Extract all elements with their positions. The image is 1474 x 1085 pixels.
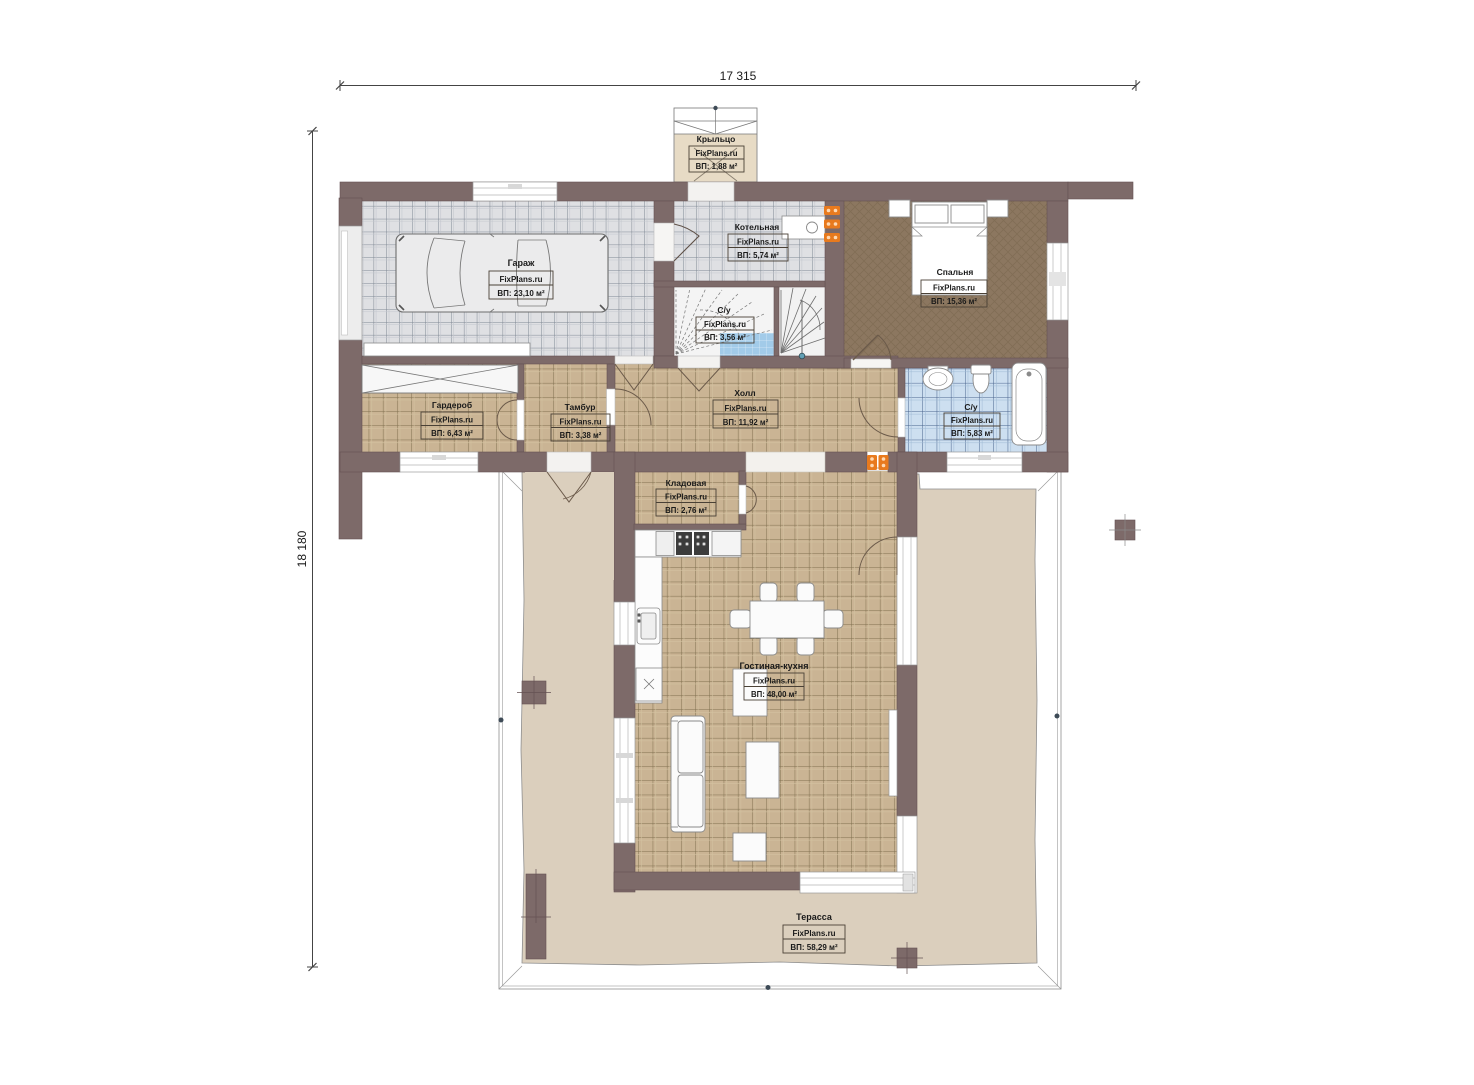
svg-text:FixPlans.ru: FixPlans.ru bbox=[559, 417, 601, 426]
svg-text:FixPlans.ru: FixPlans.ru bbox=[431, 415, 473, 424]
svg-text:ВП: 5,83 м²: ВП: 5,83 м² bbox=[951, 429, 993, 438]
svg-text:С/у: С/у bbox=[964, 402, 978, 412]
svg-text:Терасса: Терасса bbox=[796, 912, 833, 922]
svg-text:ВП: 58,29 м²: ВП: 58,29 м² bbox=[790, 943, 838, 952]
svg-text:17 315: 17 315 bbox=[720, 69, 757, 83]
svg-text:ВП: 11,92 м²: ВП: 11,92 м² bbox=[723, 418, 769, 427]
svg-text:FixPlans.ru: FixPlans.ru bbox=[737, 237, 779, 246]
svg-text:Спальня: Спальня bbox=[937, 267, 974, 277]
svg-text:FixPlans.ru: FixPlans.ru bbox=[704, 320, 746, 329]
svg-text:Гостиная-кухня: Гостиная-кухня bbox=[740, 661, 809, 671]
svg-text:Крыльцо: Крыльцо bbox=[697, 134, 736, 144]
svg-text:ВП: 5,74 м²: ВП: 5,74 м² bbox=[737, 251, 779, 260]
svg-text:FixPlans.ru: FixPlans.ru bbox=[792, 929, 835, 938]
svg-text:Холл: Холл bbox=[734, 388, 755, 398]
svg-text:FixPlans.ru: FixPlans.ru bbox=[724, 404, 766, 413]
svg-text:ВП: 15,36 м²: ВП: 15,36 м² bbox=[931, 297, 977, 306]
svg-text:ВП: 6,43 м²: ВП: 6,43 м² bbox=[431, 429, 473, 438]
svg-text:FixPlans.ru: FixPlans.ru bbox=[665, 492, 707, 501]
svg-text:Гараж: Гараж bbox=[508, 258, 535, 268]
svg-text:FixPlans.ru: FixPlans.ru bbox=[753, 676, 795, 685]
svg-text:Гардероб: Гардероб bbox=[432, 400, 472, 410]
svg-text:ВП: 3,56 м²: ВП: 3,56 м² bbox=[704, 333, 746, 342]
svg-text:ВП: 23,10 м²: ВП: 23,10 м² bbox=[497, 289, 545, 298]
svg-text:18 180: 18 180 bbox=[295, 530, 309, 567]
svg-text:ВП: 48,00 м²: ВП: 48,00 м² bbox=[751, 690, 797, 699]
svg-text:ВП: 1,88 м²: ВП: 1,88 м² bbox=[696, 162, 738, 171]
svg-text:Котельная: Котельная bbox=[735, 222, 780, 232]
svg-text:Тамбур: Тамбур bbox=[565, 402, 596, 412]
svg-text:FixPlans.ru: FixPlans.ru bbox=[951, 416, 993, 425]
svg-text:FixPlans.ru: FixPlans.ru bbox=[499, 275, 542, 284]
svg-text:FixPlans.ru: FixPlans.ru bbox=[695, 149, 737, 158]
svg-text:ВП: 3,38 м²: ВП: 3,38 м² bbox=[560, 431, 602, 440]
svg-text:ВП: 2,76 м²: ВП: 2,76 м² bbox=[665, 506, 707, 515]
svg-text:FixPlans.ru: FixPlans.ru bbox=[933, 283, 975, 292]
svg-text:Кладовая: Кладовая bbox=[666, 478, 707, 488]
svg-text:С/у: С/у bbox=[717, 305, 731, 315]
